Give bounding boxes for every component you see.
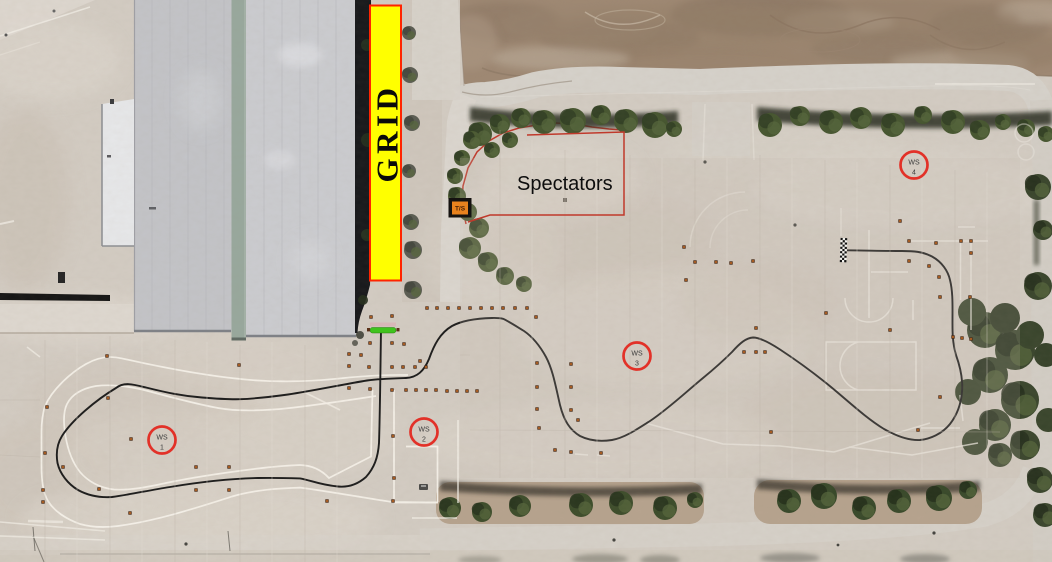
svg-text:WS: WS: [156, 435, 168, 442]
svg-text:WS: WS: [631, 351, 643, 358]
svg-text:Spectators: Spectators: [517, 173, 613, 195]
svg-text:3: 3: [635, 361, 639, 368]
svg-text:WS: WS: [418, 427, 430, 434]
svg-text:2: 2: [422, 437, 426, 444]
svg-text:4: 4: [912, 170, 916, 177]
svg-text:1: 1: [160, 445, 164, 452]
svg-text:GRID: GRID: [370, 84, 405, 183]
svg-text:T/S: T/S: [455, 206, 466, 213]
svg-text:WS: WS: [908, 160, 920, 167]
